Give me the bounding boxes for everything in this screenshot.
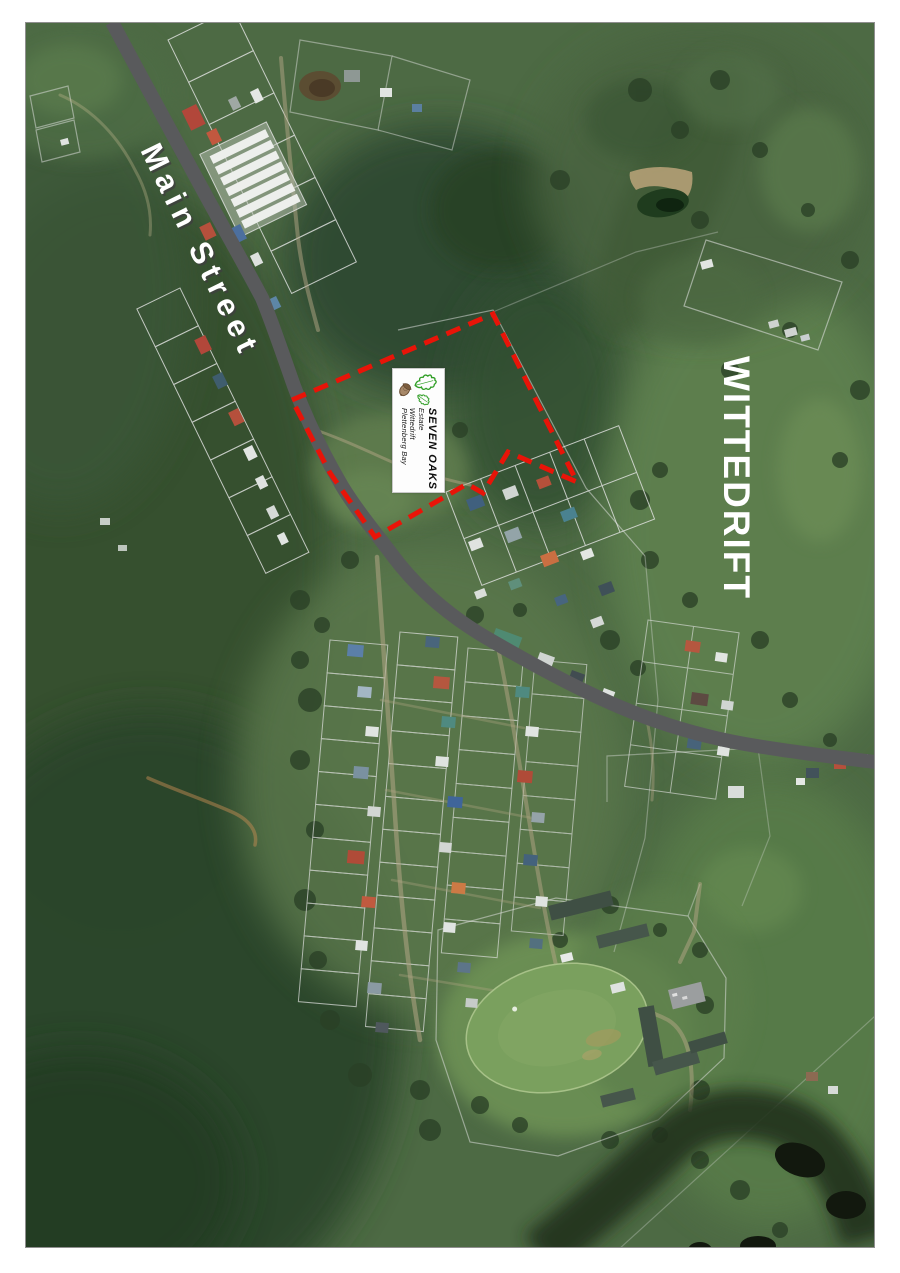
satellite-image: Main Street Main Street WITTEDRIFT [26,23,874,1247]
site-plan-page: Main Street Main Street WITTEDRIFT [0,0,900,1273]
estate-line-plettenberg: Plettenberg Bay [399,408,408,490]
estate-name: SEVEN OAKS [425,408,438,490]
terrain [26,23,874,1247]
seven-oaks-logo-icon [395,371,443,407]
estate-line-wittedrift: Wittedrift [408,408,417,490]
estate-label-box: SEVEN OAKS Estate Wittedrift Plettenberg… [392,368,445,493]
estate-line-estate: Estate [416,408,425,490]
region-label: WITTEDRIFT [716,356,757,600]
svg-text:WITTEDRIFT: WITTEDRIFT [716,356,757,600]
aerial-map: Main Street Main Street WITTEDRIFT [25,22,875,1248]
